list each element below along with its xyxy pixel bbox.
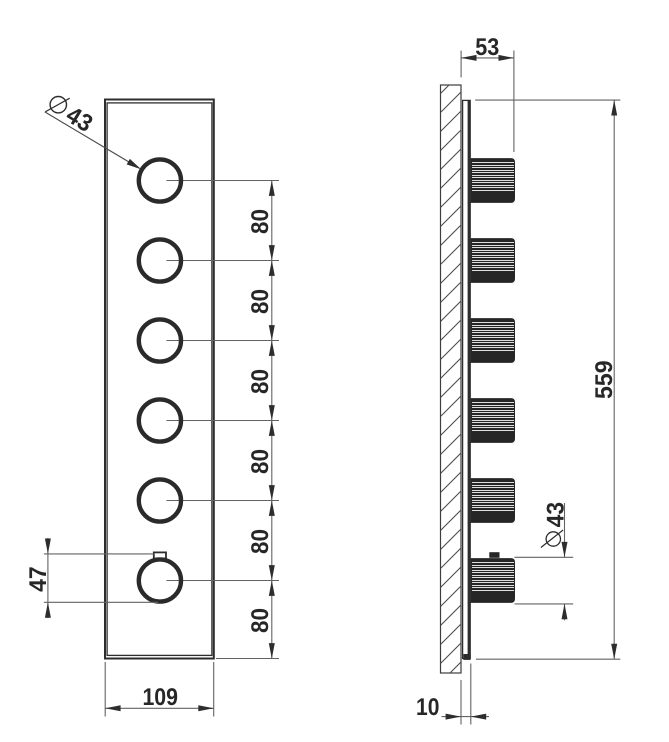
svg-text:80: 80 [247,209,274,234]
svg-text:80: 80 [247,608,274,633]
svg-text:559: 559 [591,360,618,399]
svg-text:80: 80 [247,529,274,554]
svg-text:43: 43 [542,502,569,528]
svg-text:80: 80 [247,369,274,394]
svg-text:10: 10 [416,694,439,721]
svg-text:80: 80 [247,449,274,474]
svg-text:53: 53 [475,34,499,61]
svg-text:80: 80 [247,289,274,314]
svg-text:47: 47 [25,566,52,592]
svg-text:109: 109 [142,684,178,711]
